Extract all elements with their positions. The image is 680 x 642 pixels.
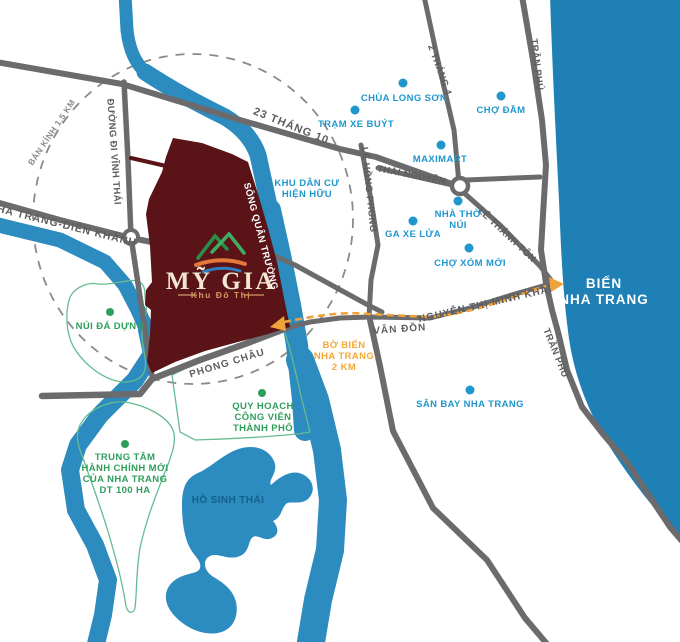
poi-label-nha-tho-nui-2: NÚI <box>449 219 467 231</box>
poi-label-san-bay: SÂN BAY NHA TRANG <box>416 398 524 410</box>
poi-label-khu-dan-cu-1: KHU DÂN CƯ <box>274 177 339 189</box>
sea-label-2: NHA TRANG <box>559 292 649 307</box>
area-label-trung-tam-2: HÀNH CHÍNH MỚI <box>81 462 168 474</box>
poi-label-maximart: MAXIMART <box>413 154 467 165</box>
sea-label-1: BIỂN <box>586 276 622 291</box>
poi-dot-cho-xom-moi <box>465 244 474 253</box>
poi-label-cho-xom-moi: CHỢ XÓM MỚI <box>434 257 506 269</box>
poi-dot-ga-xe-lua <box>409 217 418 226</box>
poi-label-chua-long-son: CHÙA LONG SƠN <box>361 92 447 104</box>
roundabout-center <box>452 178 468 194</box>
poi-dot-chua-long-son <box>399 79 408 88</box>
area-label-trung-tam-3: CỦA NHA TRANG <box>83 473 168 485</box>
route-note-3: 2 KM <box>332 362 356 373</box>
route-note-1: BỜ BIỂN <box>322 339 365 351</box>
poi-label-nha-tho-nui-1: NHÀ THỜ <box>435 208 482 220</box>
poi-dot-san-bay <box>466 386 475 395</box>
area-label-trung-tam-4: DT 100 HA <box>99 485 150 496</box>
poi-dot-cho-dam <box>497 92 506 101</box>
location-map: MỸ GIA Khu Đô Thị BÁN KÍNH 1.5 KM ĐƯỜNG … <box>0 0 680 642</box>
poi-label-khu-dan-cu-2: HIỆN HỮU <box>282 188 332 200</box>
area-dot-nui-da-dung <box>106 308 114 316</box>
map-canvas: MỸ GIA Khu Đô Thị BÁN KÍNH 1.5 KM ĐƯỜNG … <box>0 0 680 642</box>
area-label-quy-hoach-3: THÀNH PHỐ <box>233 422 293 434</box>
lake-label: HỒ SINH THÁI <box>192 493 265 506</box>
area-label-quy-hoach-1: QUY HOẠCH <box>232 401 294 412</box>
area-dot-quy-hoach <box>258 389 266 397</box>
area-label-trung-tam-1: TRUNG TÂM <box>95 451 156 463</box>
poi-label-tram-xe-buyt: TRẠM XE BUÝT <box>318 118 394 130</box>
area-label-nui-da-dung: NÚI ĐÁ DỰNG <box>76 320 145 332</box>
poi-label-cho-dam: CHỢ ĐẦM <box>477 105 526 116</box>
road-roundabout-east <box>466 177 540 180</box>
area-label-quy-hoach-2: CÔNG VIÊN <box>235 411 292 423</box>
area-dot-trung-tam <box>121 440 129 448</box>
route-note-2: NHA TRANG <box>314 351 374 362</box>
poi-dot-maximart <box>437 141 446 150</box>
poi-label-ga-xe-lua: GA XE LỬA <box>385 228 441 240</box>
poi-dot-nha-tho-nui <box>454 197 463 206</box>
poi-dot-tram-xe-buyt <box>351 106 360 115</box>
logo-subtitle: Khu Đô Thị <box>191 290 251 300</box>
